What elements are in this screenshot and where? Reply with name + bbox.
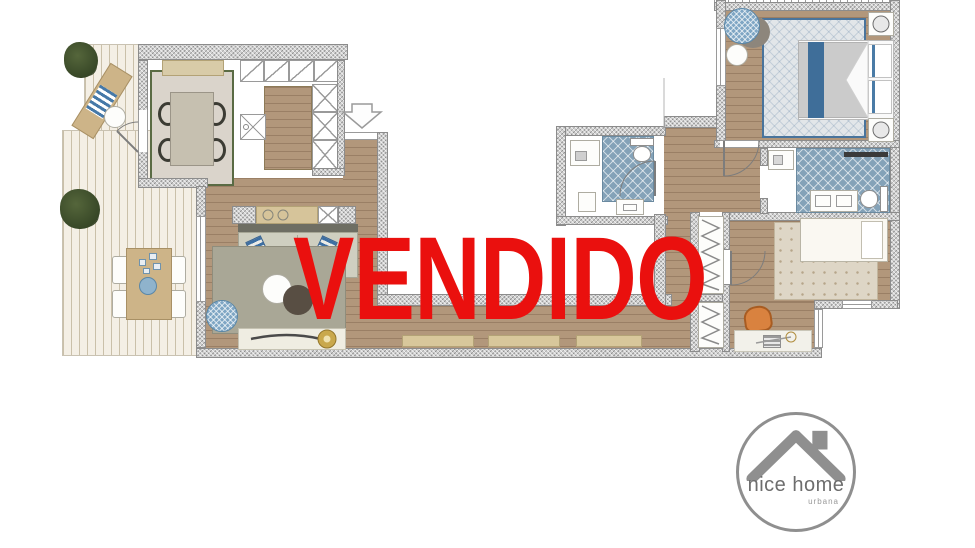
kitchen-sink xyxy=(240,114,266,140)
shower-unit xyxy=(570,140,600,166)
bathroom2-cabinet xyxy=(768,150,794,170)
wall-segment xyxy=(760,198,768,214)
agency-logo: nice home urbana xyxy=(736,412,856,532)
table-bowl xyxy=(139,277,157,295)
kitchen-cabinet xyxy=(314,60,338,82)
kitchen-cabinet xyxy=(264,60,289,82)
towel-rail xyxy=(844,152,888,157)
plate xyxy=(143,268,150,274)
wall-segment xyxy=(760,148,768,166)
wall-segment xyxy=(556,126,566,226)
double-vanity xyxy=(810,190,858,212)
toilet-bowl xyxy=(860,190,878,208)
dining-table xyxy=(170,92,214,166)
plate xyxy=(139,259,146,266)
wall-segment xyxy=(312,168,345,176)
entrance-arrow-icon xyxy=(343,104,381,128)
desk xyxy=(734,330,812,352)
master-window xyxy=(716,28,726,86)
cabinet-inset xyxy=(773,155,783,165)
wall-segment xyxy=(138,60,148,112)
outdoor-dining-table xyxy=(126,248,172,320)
sold-stamp: VENDIDO xyxy=(293,226,707,332)
kitchen-island xyxy=(264,86,312,170)
sink-basin xyxy=(623,204,637,211)
bedroom2-window xyxy=(842,300,872,309)
bed-pillow xyxy=(868,80,892,114)
plate xyxy=(149,253,157,260)
plate xyxy=(153,263,161,270)
living-window xyxy=(196,216,206,302)
logo-title: nice home xyxy=(739,474,853,497)
nightstand xyxy=(868,118,894,142)
pouf xyxy=(206,300,238,332)
single-bed xyxy=(800,218,888,262)
pedestal-sink xyxy=(578,192,596,212)
toilet-tank xyxy=(880,186,888,212)
plant-icon xyxy=(64,42,98,78)
bedroom2-window xyxy=(814,309,823,348)
entry-hall-floor xyxy=(343,139,377,185)
terrace-door-opening xyxy=(138,110,148,152)
kitchen-tall-unit xyxy=(312,112,338,140)
toilet-tank xyxy=(630,138,654,146)
counter-pillar xyxy=(232,206,256,224)
side-table-round xyxy=(726,44,748,66)
terrace-side-table xyxy=(104,106,126,128)
house-roof-icon xyxy=(742,425,850,481)
kitchen-tall-unit xyxy=(312,84,338,112)
logo-subtitle: urbana xyxy=(808,497,839,506)
wall-segment xyxy=(138,44,348,60)
kitchen-cabinet xyxy=(289,60,314,82)
sideboard xyxy=(162,60,224,76)
sink-basin xyxy=(815,195,831,207)
armchair xyxy=(724,8,760,44)
kitchen-cabinet xyxy=(240,60,264,82)
wall-segment xyxy=(337,60,345,173)
nightstand xyxy=(868,12,894,36)
floorplan-page: VENDIDO nice home urbana xyxy=(0,0,975,548)
bed-pillow xyxy=(868,44,892,78)
toilet-bowl xyxy=(633,146,651,162)
plant-icon xyxy=(60,189,100,229)
master-door-opening xyxy=(720,140,758,148)
kitchen-tall-unit xyxy=(312,140,338,170)
bed-pillow xyxy=(861,221,883,259)
wall-segment xyxy=(556,126,666,136)
shower-drain xyxy=(575,151,587,161)
sink-basin xyxy=(836,195,852,207)
bed-runner xyxy=(808,42,824,118)
desk-papers xyxy=(763,335,781,348)
